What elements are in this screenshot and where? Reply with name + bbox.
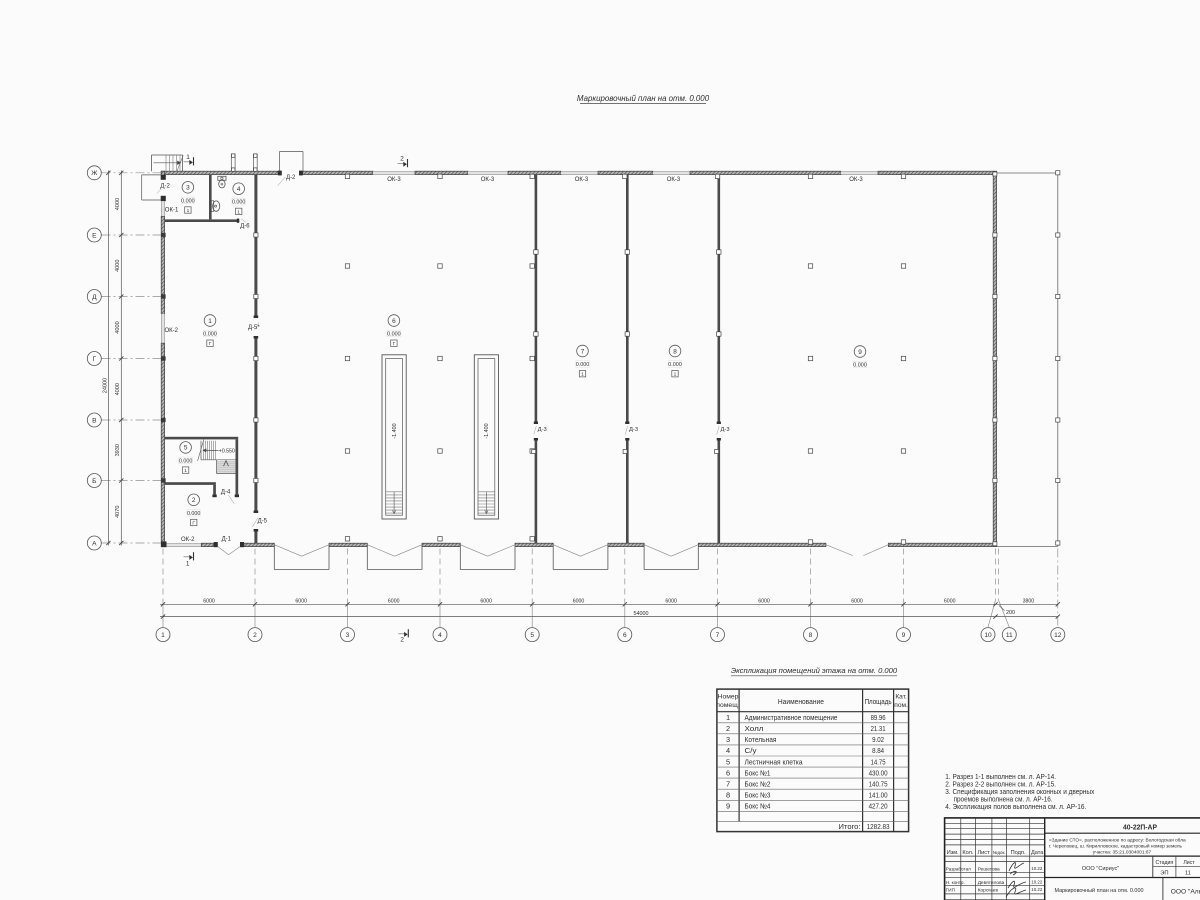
svg-text:4: 4 bbox=[438, 632, 442, 639]
svg-text:пом.: пом. bbox=[894, 702, 908, 709]
svg-text:0.000: 0.000 bbox=[853, 363, 867, 369]
svg-text:2: 2 bbox=[400, 636, 404, 643]
svg-text:8: 8 bbox=[673, 348, 677, 355]
svg-text:427.20: 427.20 bbox=[869, 802, 888, 811]
svg-text:Г: Г bbox=[192, 520, 195, 526]
svg-text:С/у: С/у bbox=[745, 746, 757, 755]
svg-text:Номер: Номер bbox=[718, 694, 739, 701]
svg-text:4000: 4000 bbox=[115, 321, 121, 333]
svg-text:Д-3: Д-3 bbox=[629, 427, 638, 433]
svg-text:1: 1 bbox=[161, 632, 165, 639]
svg-text:2: 2 bbox=[400, 156, 404, 163]
svg-text:Бокс №3: Бокс №3 bbox=[745, 791, 771, 800]
svg-text:Подп.: Подп. bbox=[1011, 850, 1026, 856]
svg-text:Маркировочный план на отм. 0.0: Маркировочный план на отм. 0.000 bbox=[577, 94, 710, 103]
svg-text:Д-2: Д-2 bbox=[286, 175, 296, 181]
svg-text:Е: Е bbox=[92, 232, 97, 239]
svg-text:24000: 24000 bbox=[102, 378, 108, 394]
svg-text:ОК-3: ОК-3 bbox=[481, 177, 495, 183]
svg-text:Площадь: Площадь bbox=[865, 698, 892, 706]
svg-text:-1.400: -1.400 bbox=[392, 423, 398, 438]
svg-text:6000: 6000 bbox=[388, 599, 400, 605]
svg-text:Г: Г bbox=[93, 356, 97, 363]
svg-text:Решетова: Решетова bbox=[978, 866, 1000, 872]
svg-text:В: В bbox=[92, 417, 97, 424]
svg-text:Стадия: Стадия bbox=[1156, 860, 1174, 866]
svg-text:Д-3: Д-3 bbox=[721, 427, 730, 433]
svg-text:Экспликация помещений этажа на: Экспликация помещений этажа на отм. 0.00… bbox=[731, 666, 898, 675]
svg-text:Котельная: Котельная bbox=[745, 735, 777, 744]
svg-text:10: 10 bbox=[984, 632, 992, 639]
svg-text:0.000: 0.000 bbox=[187, 511, 201, 517]
svg-text:Д-4: Д-4 bbox=[221, 489, 231, 495]
svg-text:ОК-2: ОК-2 bbox=[165, 328, 179, 334]
svg-text:ЭП: ЭП bbox=[1160, 871, 1168, 877]
svg-text:8: 8 bbox=[809, 632, 813, 639]
svg-text:6: 6 bbox=[392, 318, 396, 325]
svg-text:Холл: Холл bbox=[745, 724, 764, 733]
svg-text:11: 11 bbox=[1006, 632, 1013, 639]
svg-text:А: А bbox=[92, 540, 97, 547]
svg-text:2: 2 bbox=[726, 724, 730, 733]
svg-text:Д-2: Д-2 bbox=[160, 184, 170, 190]
svg-text:40-22П-АР: 40-22П-АР bbox=[1123, 823, 1157, 832]
svg-text:6000: 6000 bbox=[573, 599, 585, 605]
svg-text:4. Экспликация полов выполнена: 4. Экспликация полов выполнена см. л. АР… bbox=[945, 802, 1086, 811]
svg-text:Ж: Ж bbox=[91, 170, 97, 177]
svg-text:140.75: 140.75 bbox=[869, 779, 888, 788]
svg-text:8.84: 8.84 bbox=[872, 746, 884, 755]
svg-text:Дата: Дата bbox=[1031, 850, 1044, 856]
svg-text:4000: 4000 bbox=[115, 259, 121, 271]
svg-text:Разработал: Разработал bbox=[946, 866, 971, 871]
svg-text:3: 3 bbox=[726, 735, 730, 744]
svg-text:помещ.: помещ. bbox=[716, 702, 740, 709]
svg-text:г. Череповец, ш. Кирилловское,: г. Череповец, ш. Кирилловское, кадастров… bbox=[1049, 842, 1183, 849]
svg-text:8: 8 bbox=[726, 791, 730, 800]
svg-text:Д-1: Д-1 bbox=[222, 537, 232, 543]
svg-text:Бокс №4: Бокс №4 bbox=[745, 802, 771, 811]
svg-text:1: 1 bbox=[726, 713, 730, 722]
svg-text:«Здание СТО», расположенное по: «Здание СТО», расположенное по адресу: В… bbox=[1049, 837, 1186, 843]
svg-text:6000: 6000 bbox=[665, 599, 677, 605]
svg-text:1282.83: 1282.83 bbox=[867, 822, 890, 831]
svg-text:6000: 6000 bbox=[944, 599, 956, 605]
svg-text:4070: 4070 bbox=[115, 505, 121, 517]
svg-text:Г: Г bbox=[209, 341, 212, 347]
svg-text:ООО "Сириус": ООО "Сириус" bbox=[1082, 866, 1120, 872]
svg-text:0.000: 0.000 bbox=[181, 198, 195, 204]
svg-text:-1.400: -1.400 bbox=[484, 423, 490, 438]
svg-text:Наименование: Наименование bbox=[778, 697, 824, 706]
svg-text:10.22: 10.22 bbox=[1031, 879, 1043, 884]
svg-text:1: 1 bbox=[674, 372, 677, 378]
svg-text:7: 7 bbox=[716, 632, 720, 639]
svg-text:1: 1 bbox=[187, 208, 190, 214]
svg-text:Корогаев: Корогаев bbox=[978, 887, 999, 893]
svg-text:3: 3 bbox=[346, 632, 350, 639]
svg-text:12: 12 bbox=[1054, 632, 1062, 639]
svg-text:Д-6: Д-6 bbox=[240, 223, 250, 229]
svg-text:9: 9 bbox=[858, 349, 862, 356]
svg-text:Д-5: Д-5 bbox=[258, 518, 268, 524]
svg-text:ОК-3: ОК-3 bbox=[387, 177, 401, 183]
svg-text:0.000: 0.000 bbox=[179, 458, 193, 464]
svg-text:0.000: 0.000 bbox=[232, 200, 246, 206]
svg-text:ГИП: ГИП bbox=[946, 887, 955, 892]
svg-text:Г: Г bbox=[393, 341, 396, 347]
svg-text:Д-3: Д-3 bbox=[538, 427, 547, 433]
svg-text:Кат.: Кат. bbox=[895, 694, 907, 701]
svg-text:Бокс №1: Бокс №1 bbox=[745, 768, 771, 777]
svg-text:6000: 6000 bbox=[758, 599, 770, 605]
svg-text:4000: 4000 bbox=[115, 383, 121, 395]
svg-text:3800: 3800 bbox=[1023, 599, 1035, 605]
svg-text:5: 5 bbox=[726, 757, 730, 766]
svg-text:10.22: 10.22 bbox=[1031, 887, 1043, 892]
svg-text:6000: 6000 bbox=[480, 599, 492, 605]
svg-text:№док.: №док. bbox=[993, 850, 1006, 855]
svg-text:Лестничная клетка: Лестничная клетка bbox=[745, 757, 804, 766]
svg-text:5: 5 bbox=[184, 445, 188, 452]
svg-text:0.000: 0.000 bbox=[668, 362, 682, 368]
svg-text:Н. контр.: Н. контр. bbox=[946, 880, 965, 885]
svg-text:Изм.: Изм. bbox=[947, 850, 959, 856]
svg-text:Д: Д bbox=[92, 294, 97, 301]
svg-text:2: 2 bbox=[192, 497, 196, 504]
svg-text:+0.550: +0.550 bbox=[219, 448, 235, 454]
svg-text:Бокс №2: Бокс №2 bbox=[745, 779, 771, 788]
svg-text:ОК-3: ОК-3 bbox=[849, 177, 863, 183]
svg-text:4: 4 bbox=[237, 186, 241, 193]
svg-text:9: 9 bbox=[902, 632, 906, 639]
svg-text:0.000: 0.000 bbox=[576, 362, 590, 368]
svg-text:200: 200 bbox=[1006, 610, 1015, 616]
svg-text:ОК-3: ОК-3 bbox=[667, 177, 681, 183]
svg-text:3: 3 bbox=[186, 185, 190, 192]
svg-text:7: 7 bbox=[726, 779, 730, 788]
svg-text:6000: 6000 bbox=[203, 599, 215, 605]
svg-text:0.000: 0.000 bbox=[387, 332, 401, 338]
svg-text:ООО "Аль: ООО "Аль bbox=[1171, 889, 1200, 896]
svg-text:9: 9 bbox=[726, 802, 730, 811]
svg-text:Кол.: Кол. bbox=[962, 850, 974, 856]
svg-text:ОК-1: ОК-1 bbox=[165, 207, 179, 213]
svg-text:1: 1 bbox=[581, 372, 584, 378]
svg-text:ОК-3: ОК-3 bbox=[575, 177, 589, 183]
svg-text:5: 5 bbox=[530, 632, 534, 639]
svg-text:6000: 6000 bbox=[295, 599, 307, 605]
svg-text:Д-5*: Д-5* bbox=[248, 325, 260, 331]
svg-text:7: 7 bbox=[581, 348, 585, 355]
svg-text:6: 6 bbox=[623, 632, 627, 639]
svg-text:1: 1 bbox=[186, 154, 190, 161]
svg-text:ОК-2: ОК-2 bbox=[181, 537, 195, 543]
svg-text:Лист: Лист bbox=[978, 850, 991, 856]
svg-text:10.22: 10.22 bbox=[1031, 866, 1043, 871]
svg-text:Девятилова: Девятилова bbox=[978, 880, 1005, 886]
svg-text:3930: 3930 bbox=[115, 444, 121, 456]
svg-text:участка: 35:21.0304001:67: участка: 35:21.0304001:67 bbox=[1093, 849, 1152, 855]
svg-text:1: 1 bbox=[208, 318, 212, 325]
svg-text:141.00: 141.00 bbox=[869, 791, 888, 800]
svg-text:Маркировочный план на отм. 0.0: Маркировочный план на отм. 0.000 bbox=[1055, 887, 1144, 894]
svg-text:Итого:: Итого: bbox=[839, 822, 861, 831]
svg-text:2: 2 bbox=[253, 632, 257, 639]
svg-text:89.96: 89.96 bbox=[871, 713, 886, 722]
svg-text:4: 4 bbox=[726, 746, 730, 755]
svg-text:Лист: Лист bbox=[1183, 860, 1195, 866]
svg-text:Административное помещение: Административное помещение bbox=[745, 713, 838, 722]
svg-text:9.02: 9.02 bbox=[872, 735, 884, 744]
svg-text:6000: 6000 bbox=[851, 599, 863, 605]
svg-text:430.00: 430.00 bbox=[869, 768, 888, 777]
svg-text:0.000: 0.000 bbox=[203, 332, 217, 338]
svg-text:Б: Б bbox=[92, 478, 96, 485]
svg-text:4000: 4000 bbox=[115, 198, 121, 210]
svg-text:1: 1 bbox=[186, 560, 190, 567]
svg-text:14.75: 14.75 bbox=[871, 757, 886, 766]
svg-text:6: 6 bbox=[726, 768, 730, 777]
svg-text:1: 1 bbox=[184, 468, 187, 474]
svg-text:11: 11 bbox=[1185, 871, 1191, 877]
svg-text:54000: 54000 bbox=[634, 611, 649, 617]
svg-text:21.31: 21.31 bbox=[871, 724, 886, 733]
svg-text:1: 1 bbox=[237, 209, 240, 215]
